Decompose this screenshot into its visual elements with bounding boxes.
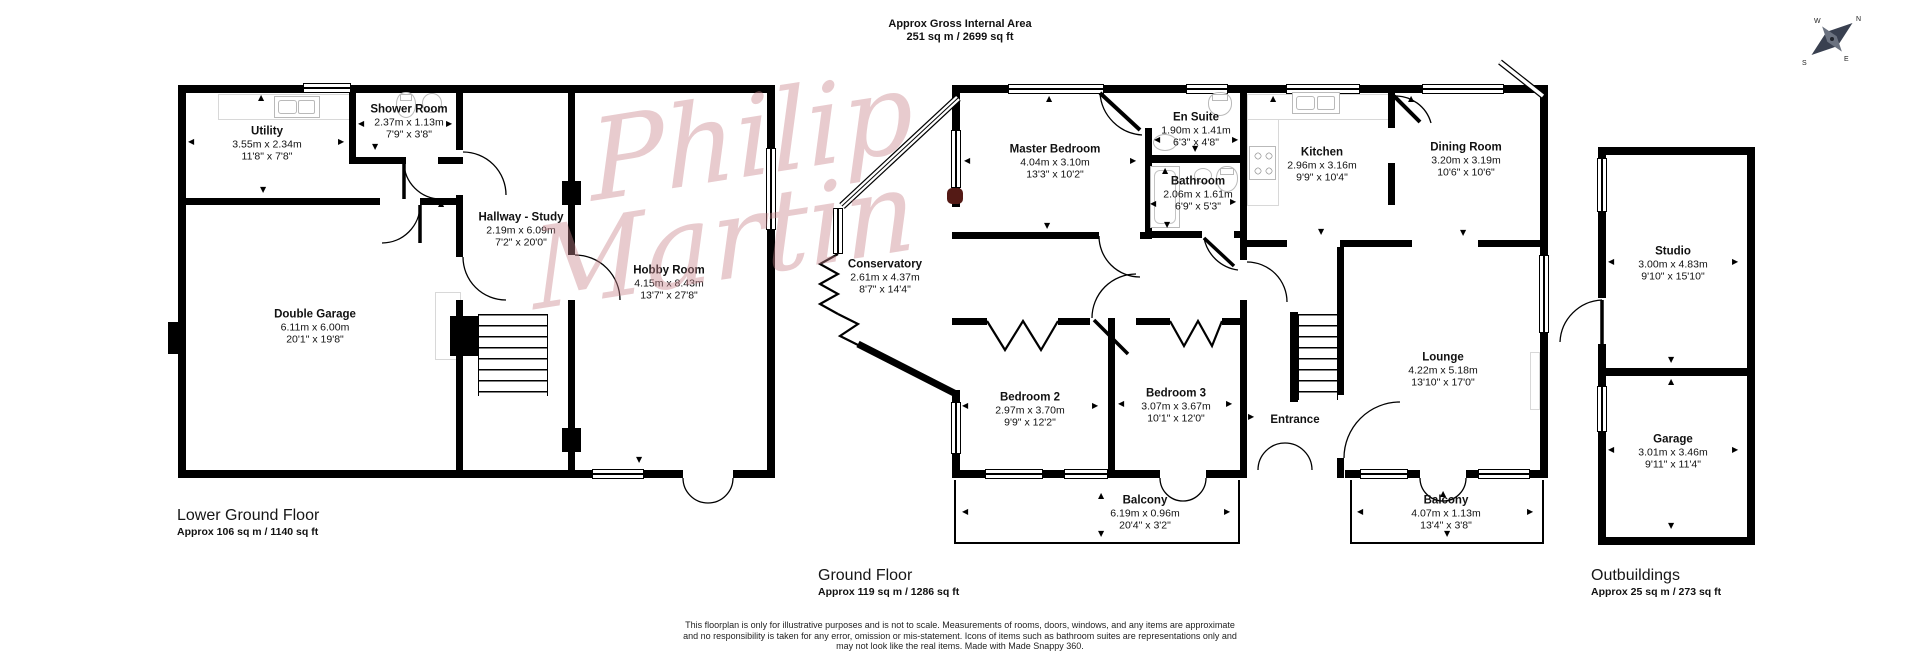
room-dim-imperial: 9'9" x 10'4" [1287,171,1356,184]
room-dim-metric: 4.04m x 3.10m [1010,156,1101,169]
wall [1108,318,1115,478]
room-label-hallway-study: Hallway - Study 2.19m x 6.09m 7'2" x 20'… [479,211,564,249]
room-name: Hallway - Study [479,211,564,224]
dimension-arrow: ▲ [438,200,444,208]
wall [438,157,463,164]
sink-icon [1292,92,1340,114]
wall [1337,247,1344,395]
dimension-arrow: ◀ [1608,258,1614,266]
wall [1140,232,1152,239]
wall [178,85,186,478]
window [1539,255,1549,333]
wall [1747,147,1755,545]
room-dim-metric: 4.22m x 5.18m [1408,364,1477,377]
wall [349,157,406,164]
room-name: Bedroom 3 [1141,387,1210,400]
wall [1388,163,1395,205]
dimension-arrow: ▶ [1224,508,1230,516]
window [951,402,961,454]
room-dim-metric: 2.96m x 3.16m [1287,159,1356,172]
dimension-arrow: ▼ [1164,221,1170,229]
dimension-arrow: ◀ [1154,136,1160,144]
room-dim-metric: 6.11m x 6.00m [274,321,356,334]
gross-internal-area-header: Approx Gross Internal Area 251 sq m / 26… [660,18,1260,44]
dimension-arrow: ◀ [962,402,968,410]
floor-area: Approx 25 sq m / 273 sq ft [1591,585,1721,599]
room-name: En Suite [1161,111,1230,124]
room-dim-imperial: 20'1" x 19'8" [274,333,356,346]
dimension-arrow: ▼ [1668,522,1674,530]
room-name: Shower Room [370,103,447,116]
room-dim-imperial: 10'1" x 12'0" [1141,412,1210,425]
room-dim-imperial: 7'9" x 3'8" [370,128,447,141]
room-name: Double Garage [274,308,356,321]
room-name: Balcony [1110,494,1179,507]
dimension-arrow: ▶ [1226,400,1232,408]
wall [349,85,356,164]
room-label-utility: Utility 3.55m x 2.34m 11'8" x 7'8" [232,125,301,163]
door-opening [683,470,733,478]
dimension-arrow: ▲ [1270,95,1276,103]
room-dim-imperial: 8'7" x 14'4" [848,283,922,296]
wall [568,205,575,255]
room-dim-metric: 3.01m x 3.46m [1638,446,1707,459]
room-name: Utility [232,125,301,138]
compass-s: S [1802,60,1807,67]
balcony-outline [954,480,1240,544]
dimension-arrow: ◀ [1118,400,1124,408]
sink-icon [274,96,320,118]
room-name: Studio [1638,245,1707,258]
header-line2: 251 sq m / 2699 sq ft [660,31,1260,44]
room-dim-metric: 3.00m x 4.83m [1638,258,1707,271]
wall [1234,231,1247,238]
header-line1: Approx Gross Internal Area [660,18,1260,31]
disclaimer-line1: This floorplan is only for illustrative … [460,620,1460,631]
wall [1240,300,1247,478]
room-name: Hobby Room [633,264,705,277]
room-dim-metric: 4.07m x 1.13m [1411,507,1480,520]
stove-flue-icon [947,188,963,204]
compass-rose-icon: N E S W [1792,8,1874,72]
window [1008,84,1104,94]
dimension-arrow: ▼ [1044,222,1050,230]
window [1360,469,1408,479]
dimension-arrow: ▶ [1130,157,1136,165]
staircase [1298,314,1338,400]
door-opening [1160,470,1206,478]
wall [1478,240,1548,247]
wall [178,85,775,93]
floor-area: Approx 106 sq m / 1140 sq ft [177,525,319,539]
floor-area: Approx 119 sq m / 1286 sq ft [818,585,959,599]
door-opening [1258,470,1312,478]
dimension-arrow: ▲ [258,94,264,102]
dimension-arrow: ◀ [1150,200,1156,208]
wall [178,198,380,205]
watermark-line2: Martin [530,161,921,321]
room-dim-imperial: 9'9" x 12'2" [995,416,1064,429]
room-label-dining-room: Dining Room 3.20m x 3.19m 10'6" x 10'6" [1430,141,1502,179]
room-name: Garage [1638,433,1707,446]
room-label-conservatory: Conservatory 2.61m x 4.37m 8'7" x 14'4" [848,258,922,296]
wall [767,85,775,478]
room-dim-imperial: 11'8" x 7'8" [232,150,301,163]
wall [1340,240,1412,247]
floor-title-ground: Ground Floor Approx 119 sq m / 1286 sq f… [818,566,959,599]
dimension-arrow: ▶ [1092,402,1098,410]
room-name: Bathroom [1163,175,1232,188]
dimension-arrow: ▼ [1098,530,1104,538]
room-label-kitchen: Kitchen 2.96m x 3.16m 9'9" x 10'4" [1287,146,1356,184]
window [1478,469,1530,479]
room-name: Dining Room [1430,141,1502,154]
wall [568,93,575,181]
room-label-bedroom-2: Bedroom 2 2.97m x 3.70m 9'9" x 12'2" [995,391,1064,429]
compass-n: N [1856,16,1861,23]
room-dim-imperial: 13'3" x 10'2" [1010,168,1101,181]
floor-title-outbuildings: Outbuildings Approx 25 sq m / 273 sq ft [1591,566,1721,599]
window [1597,158,1607,212]
dimension-arrow: ▼ [1668,356,1674,364]
wall [1058,318,1090,325]
room-dim-metric: 2.19m x 6.09m [479,224,564,237]
dimension-arrow: ▲ [1098,492,1104,500]
wall [1388,93,1395,128]
dimension-arrow: ▼ [1318,228,1324,236]
room-name: Lounge [1408,351,1477,364]
wall [1598,147,1755,155]
wall [1598,368,1755,376]
window [833,208,843,254]
dimension-arrow: ◀ [358,120,364,128]
wall [562,181,581,205]
dimension-arrow: ▼ [1460,229,1466,237]
room-label-balcony-2: Balcony 4.07m x 1.13m 13'4" x 3'8" [1411,494,1480,532]
window [766,148,776,230]
dimension-arrow: ▶ [338,138,344,146]
dimension-arrow: ▶ [1232,136,1238,144]
wall [1240,93,1247,238]
dimension-arrow: ▲ [1046,95,1052,103]
room-dim-imperial: 10'6" x 10'6" [1430,166,1502,179]
room-dim-metric: 2.37m x 1.13m [370,116,447,129]
window [1597,386,1607,432]
room-dim-imperial: 13'7" x 27'8" [633,289,705,302]
wall [562,428,581,452]
window [1064,469,1108,479]
dimension-arrow: ◀ [1357,508,1363,516]
wall [1337,458,1344,478]
room-dim-metric: 2.97m x 3.70m [995,404,1064,417]
dimension-arrow: ◀ [188,138,194,146]
door-opening [1420,470,1466,478]
staircase [478,314,548,396]
wall [1598,537,1755,545]
room-dim-metric: 3.20m x 3.19m [1430,154,1502,167]
room-label-double-garage: Double Garage 6.11m x 6.00m 20'1" x 19'8… [274,308,356,346]
room-dim-metric: 6.19m x 0.96m [1110,507,1179,520]
room-label-hobby-room: Hobby Room 4.15m x 8.43m 13'7" x 27'8" [633,264,705,302]
wall [952,232,1099,239]
floor-name: Ground Floor [818,566,959,585]
room-dim-metric: 1.90m x 1.41m [1161,124,1230,137]
window [985,469,1043,479]
wall [1145,155,1247,163]
room-label-shower-room: Shower Room 2.37m x 1.13m 7'9" x 3'8" [370,103,447,141]
dimension-arrow: ▶ [1527,508,1533,516]
room-label-bedroom-3: Bedroom 3 3.07m x 3.67m 10'1" x 12'0" [1141,387,1210,425]
room-name: Kitchen [1287,146,1356,159]
dimension-arrow: ◀ [1608,446,1614,454]
room-dim-metric: 3.07m x 3.67m [1141,400,1210,413]
room-dim-metric: 2.06m x 1.61m [1163,188,1232,201]
room-label-entrance: Entrance [1270,414,1319,427]
room-name: Bedroom 2 [995,391,1064,404]
disclaimer-line3: may not look like the real items. Made w… [460,641,1460,652]
wall [456,195,463,257]
window [592,469,644,479]
wall [168,322,186,354]
room-dim-imperial: 9'10" x 15'10" [1638,270,1707,283]
window [1422,84,1504,94]
room-label-master-bedroom: Master Bedroom 4.04m x 3.10m 13'3" x 10'… [1010,143,1101,181]
window [303,83,351,93]
wall [1290,312,1298,402]
room-label-lounge: Lounge 4.22m x 5.18m 13'10" x 17'0" [1408,351,1477,389]
floor-title-lower-ground: Lower Ground Floor Approx 106 sq m / 114… [177,506,319,539]
room-name: Entrance [1270,414,1319,427]
room-dim-metric: 4.15m x 8.43m [633,277,705,290]
stove-icon [1249,146,1276,180]
wall [1145,231,1202,238]
room-dim-imperial: 13'10" x 17'0" [1408,376,1477,389]
floor-name: Outbuildings [1591,566,1721,585]
dimension-arrow: ▼ [372,143,378,151]
room-label-garage: Garage 3.01m x 3.46m 9'11" x 11'4" [1638,433,1707,471]
disclaimer-line2: and no responsibility is taken for any e… [460,631,1460,642]
room-label-en-suite: En Suite 1.90m x 1.41m 6'3" x 4'8" [1161,111,1230,149]
room-dim-imperial: 9'11" x 11'4" [1638,458,1707,471]
room-dim-metric: 3.55m x 2.34m [232,138,301,151]
room-name: Balcony [1411,494,1480,507]
dimension-arrow: ▼ [260,186,266,194]
wall [456,93,463,150]
wall [568,300,575,428]
dimension-arrow: ▶ [1732,446,1738,454]
radiator [1530,352,1540,410]
room-name: Master Bedroom [1010,143,1101,156]
dimension-arrow: ▼ [636,456,642,464]
dimension-arrow: ▲ [1408,95,1414,103]
floor-name: Lower Ground Floor [177,506,319,525]
dimension-arrow: ◀ [964,157,970,165]
wall [1240,240,1287,247]
dimension-arrow: ▶ [1248,413,1254,421]
dimension-arrow: ▶ [1732,258,1738,266]
wall [568,452,575,470]
room-label-studio: Studio 3.00m x 4.83m 9'10" x 15'10" [1638,245,1707,283]
door-opening [1598,298,1606,344]
room-dim-imperial: 6'9" x 5'3" [1163,200,1232,213]
room-label-balcony-1: Balcony 6.19m x 0.96m 20'4" x 3'2" [1110,494,1179,532]
disclaimer: This floorplan is only for illustrative … [460,620,1460,652]
compass-e: E [1844,56,1849,63]
dimension-arrow: ◀ [962,508,968,516]
dimension-arrow: ▲ [1668,378,1674,386]
room-dim-imperial: 20'4" x 3'2" [1110,519,1179,532]
floorplan-canvas: Approx Gross Internal Area 251 sq m / 26… [0,0,1920,666]
room-dim-imperial: 13'4" x 3'8" [1411,519,1480,532]
room-dim-metric: 2.61m x 4.37m [848,271,922,284]
compass-w: W [1814,18,1821,25]
room-name: Conservatory [848,258,922,271]
room-dim-imperial: 7'2" x 20'0" [479,236,564,249]
wall [952,318,987,325]
wall [450,316,478,356]
dimension-arrow: ▲ [1162,167,1168,175]
room-label-bathroom: Bathroom 2.06m x 1.61m 6'9" x 5'3" [1163,175,1232,213]
room-dim-imperial: 6'3" x 4'8" [1161,136,1230,149]
wall [1136,318,1170,325]
window [951,130,961,188]
